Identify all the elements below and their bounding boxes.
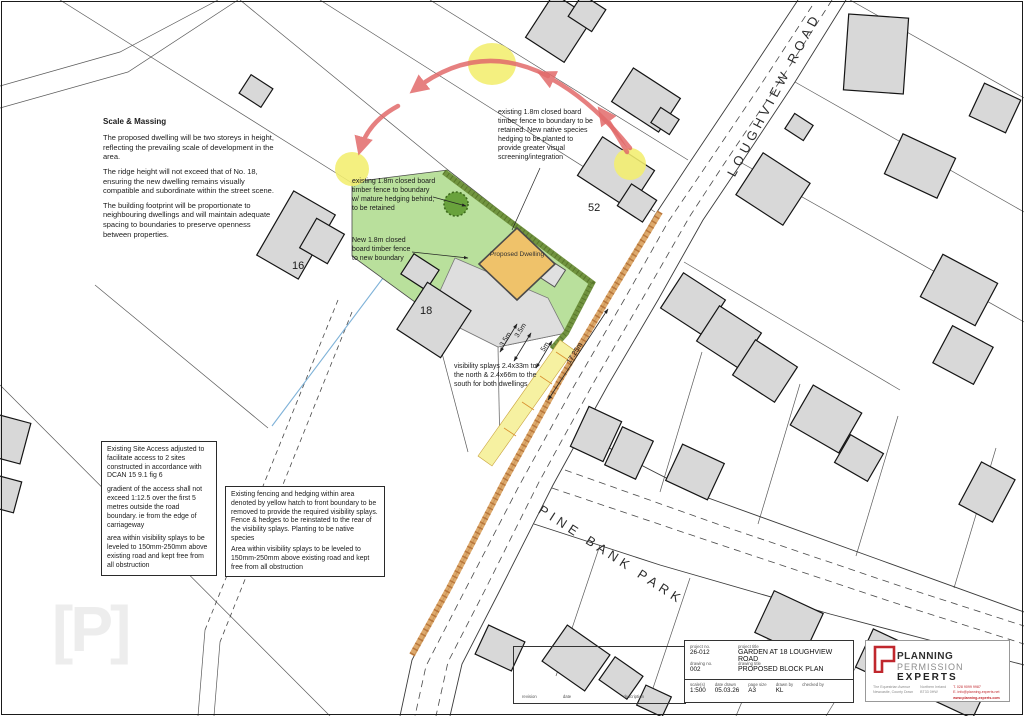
- logo-line1: PLANNING: [897, 652, 964, 662]
- house-number-16: 16: [292, 260, 304, 272]
- highlight-circle-right: [614, 148, 646, 180]
- revision-date-label: date: [563, 694, 571, 699]
- drawn-by-value: KL: [776, 687, 793, 694]
- drawing-no-value: 002: [690, 666, 738, 673]
- dim-5m: 5m: [540, 341, 551, 353]
- page-size-value: A3: [748, 687, 766, 694]
- logo-line2: PERMISSION: [897, 663, 964, 672]
- access-note-p3: area within visibility splays to be leve…: [107, 535, 211, 570]
- title-block-divider: [685, 679, 853, 680]
- scale-massing-p2: The ridge height will not exceed that of…: [103, 167, 281, 196]
- logo-address-col1: The Equestrian Avenue Newcastle, County …: [873, 685, 913, 701]
- scale-massing-block: Scale & Massing The proposed dwelling wi…: [103, 117, 281, 239]
- logo-contact-col: T. 028 9099 9987 E. info@planning-expert…: [953, 685, 1000, 701]
- planning-permission-experts-logo-icon: [871, 645, 897, 673]
- checked-by-label: checked by: [802, 682, 824, 687]
- logo-line3: EXPERTS: [897, 673, 964, 683]
- site-plan-map: 3.5m 3.5m 5m 17.25m: [0, 0, 1024, 716]
- plot-boundary-lines: [0, 0, 1024, 716]
- buildings: [0, 0, 1021, 716]
- note-fence-retained: existing 1.8m closed board timber fence …: [498, 109, 593, 163]
- scale-massing-heading: Scale & Massing: [103, 117, 281, 127]
- fencing-note-box: Existing fencing and hedging within area…: [225, 486, 385, 577]
- access-note-box: Existing Site Access adjusted to facilit…: [101, 441, 217, 576]
- logo-block: PLANNING PERMISSION EXPERTS The Equestri…: [865, 640, 1010, 702]
- red-arrow-2: [360, 106, 398, 150]
- house-number-18: 18: [420, 305, 432, 317]
- date-drawn-value: 05.03.26: [715, 687, 740, 694]
- revision-description-label: description: [623, 694, 644, 699]
- logo-address-col2: Northern Ireland BT33 0HW: [920, 685, 946, 701]
- access-note-p1: Existing Site Access adjusted to facilit…: [107, 446, 211, 481]
- access-note-p2: gradient of the access shall not exceed …: [107, 486, 211, 530]
- project-no-value: 26-012: [690, 649, 738, 656]
- house-number-52: 52: [588, 202, 600, 214]
- note-fence-mature: existing 1.8m closed board timber fence …: [352, 178, 438, 214]
- drawing-sheet: 3.5m 3.5m 5m 17.25m [P] LOUGHVIEW ROAD P…: [0, 0, 1024, 716]
- fencing-note-p2: Area within visibility splays to be leve…: [231, 546, 379, 572]
- proposed-dwelling-label: Proposed Dwelling: [484, 251, 550, 259]
- drawing-title-value: PROPOSED BLOCK PLAN: [738, 666, 824, 673]
- scale-value: 1:500: [690, 687, 706, 694]
- roads: [400, 0, 1024, 716]
- title-block: project no. 26-012 project title GARDEN …: [684, 640, 854, 703]
- fencing-note-p1: Existing fencing and hedging within area…: [231, 491, 379, 544]
- scale-massing-p3: The building footprint will be proportio…: [103, 201, 281, 239]
- revision-label: revision: [522, 694, 537, 699]
- note-visibility-splays: visibility splays 2.4x33m to the north &…: [454, 363, 544, 390]
- scale-massing-p1: The proposed dwelling will be two storey…: [103, 133, 281, 162]
- application-site: [352, 170, 592, 466]
- revision-strip: revision date description: [513, 646, 686, 704]
- retained-tree: [444, 192, 468, 216]
- note-new-fence: New 1.8m closed board timber fence to ne…: [352, 237, 418, 264]
